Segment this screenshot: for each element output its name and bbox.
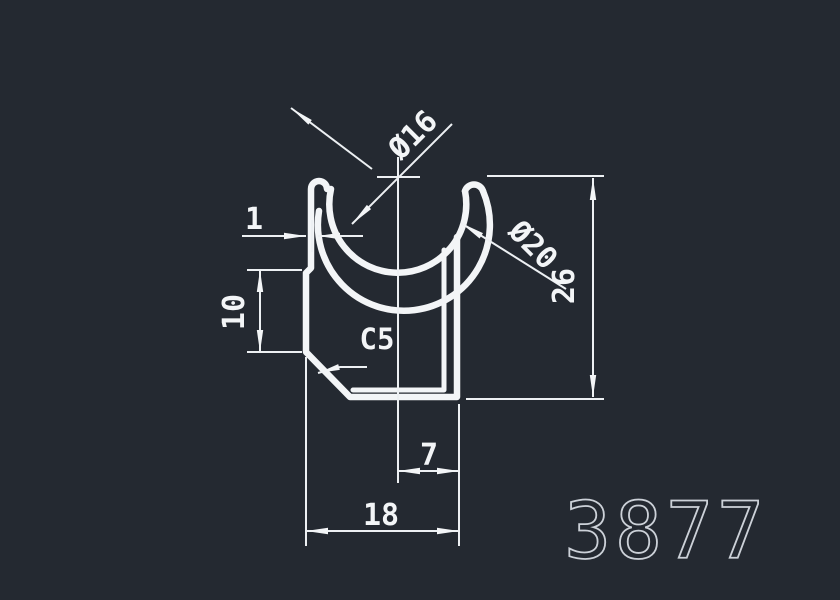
arrow-18-right	[437, 528, 459, 534]
arrow-1-left	[284, 233, 306, 239]
arrow-10-top	[257, 270, 263, 292]
arrow-dia16-outer	[291, 108, 312, 125]
cad-drawing-viewport[interactable]: Ø16 Ø20 26 1 10 C5 7 18 3877	[0, 0, 840, 600]
arrow-18-left	[306, 528, 328, 534]
arrow-26-bottom	[590, 375, 596, 397]
label-18: 18	[363, 498, 399, 533]
extension-lines	[247, 157, 604, 546]
label-1: 1	[245, 202, 263, 237]
label-dia16: Ø16	[381, 104, 445, 168]
arrow-26-top	[590, 178, 596, 200]
right-lip-cap	[465, 185, 483, 191]
label-26: 26	[547, 268, 582, 304]
arrow-7-right	[437, 468, 459, 474]
profile-number: 3877	[564, 487, 768, 577]
dimension-labels: Ø16 Ø20 26 1 10 C5 7 18	[217, 104, 582, 533]
label-c5: C5	[360, 322, 395, 356]
arrow-dia16-inner	[352, 205, 371, 224]
label-10: 10	[217, 294, 252, 330]
arrow-7-left	[398, 468, 420, 474]
arrow-10-bottom	[257, 330, 263, 352]
cad-model-space: Ø16 Ø20 26 1 10 C5 7 18 3877	[0, 0, 840, 600]
dimension-lines	[242, 108, 593, 531]
label-7: 7	[420, 438, 438, 473]
label-dia20: Ø20	[500, 213, 564, 277]
